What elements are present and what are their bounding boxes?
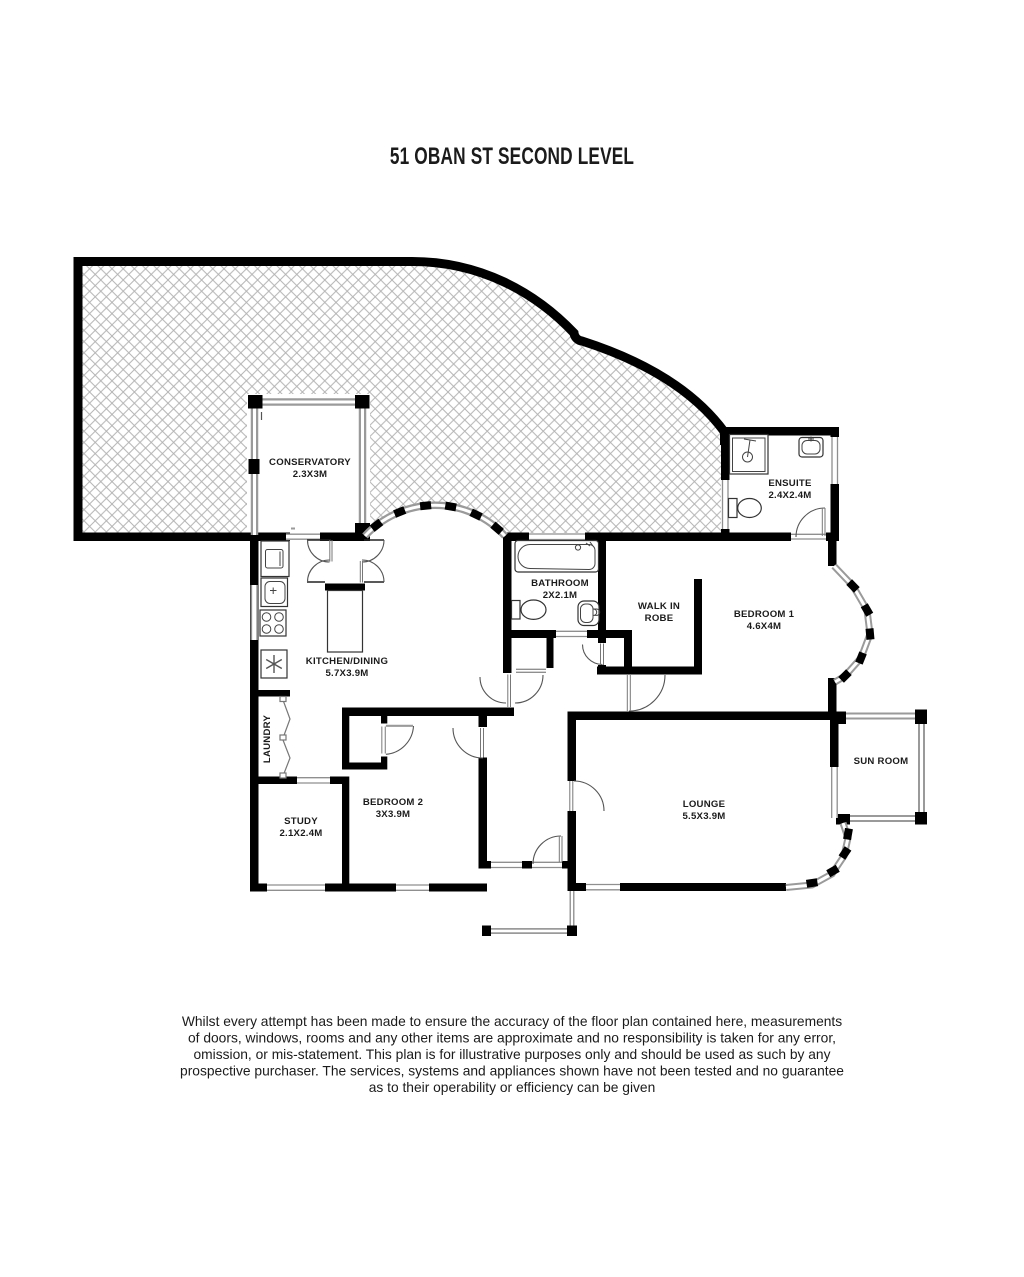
svg-text:BATHROOM: BATHROOM [531,578,589,589]
svg-text:2X2.1M: 2X2.1M [543,590,578,601]
svg-text:omission, or mis-statement. Th: omission, or mis-statement. This plan is… [193,1047,830,1062]
svg-text:3X3.9M: 3X3.9M [376,809,411,820]
svg-text:Whilst every attempt has been: Whilst every attempt has been made to en… [182,1014,842,1029]
svg-text:5.7X3.9M: 5.7X3.9M [325,668,368,679]
svg-text:of doors, windows, rooms and a: of doors, windows, rooms and any other i… [188,1031,836,1046]
svg-text:ROBE: ROBE [645,613,674,624]
svg-text:KITCHEN/DINING: KITCHEN/DINING [306,656,388,667]
svg-text:51 OBAN ST SECOND LEVEL: 51 OBAN ST SECOND LEVEL [390,143,634,169]
svg-text:SUN ROOM: SUN ROOM [854,756,909,767]
svg-text:BEDROOM 2: BEDROOM 2 [363,797,423,808]
svg-text:2.1X2.4M: 2.1X2.4M [279,828,322,839]
svg-text:LOUNGE: LOUNGE [683,799,726,810]
svg-text:STUDY: STUDY [284,816,318,827]
svg-text:as to their operability or eff: as to their operability or efficiency ca… [369,1080,656,1095]
svg-text:2.3X3M: 2.3X3M [293,469,328,480]
svg-text:BEDROOM 1: BEDROOM 1 [734,609,795,620]
svg-text:ENSUITE: ENSUITE [768,478,812,489]
svg-text:prospective purchaser. The ser: prospective purchaser. The services, sys… [180,1064,844,1079]
svg-text:2.4X2.4M: 2.4X2.4M [768,490,811,501]
svg-text:WALK IN: WALK IN [638,601,680,612]
svg-text:LAUNDRY: LAUNDRY [262,715,273,764]
svg-text:CONSERVATORY: CONSERVATORY [269,457,351,468]
svg-text:4.6X4M: 4.6X4M [747,621,782,632]
svg-text:5.5X3.9M: 5.5X3.9M [682,811,725,822]
